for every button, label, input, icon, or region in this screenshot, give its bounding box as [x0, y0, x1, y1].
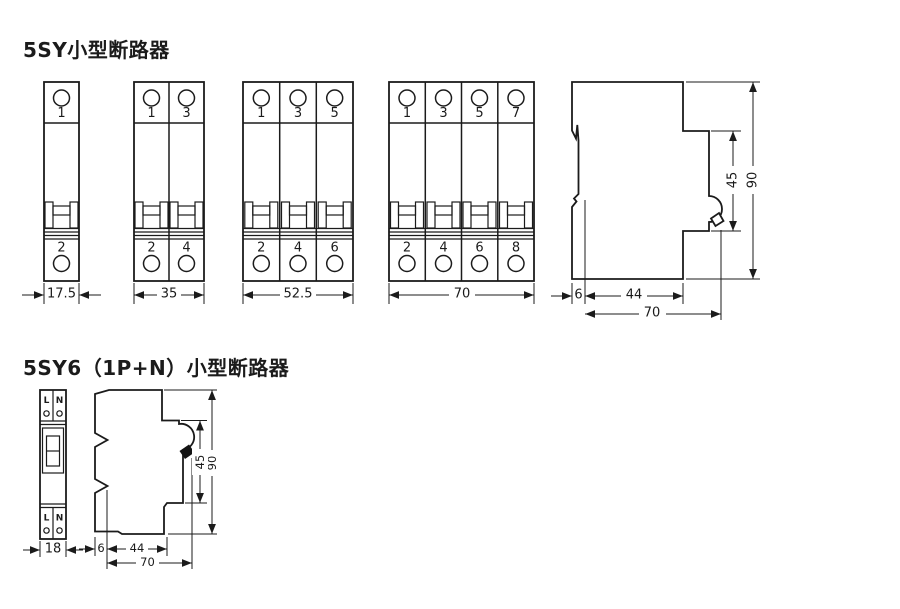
pole-number: 6: [475, 241, 483, 256]
dim-label: 6: [574, 288, 582, 303]
pole-number: 7: [512, 106, 520, 121]
rail-dimension: 6: [79, 541, 105, 555]
height-dimension: 90: [744, 82, 762, 279]
handle-height-dimension: 45: [724, 131, 742, 231]
dim-label: 45: [193, 455, 207, 470]
terminal-label: N: [56, 396, 64, 406]
technical-drawing: 1 2 17.5 1 3: [0, 0, 900, 609]
width-dimension: 35: [134, 283, 204, 304]
pole-number: 1: [147, 106, 155, 121]
pole-number: 8: [512, 241, 520, 256]
dim-label: 52.5: [284, 287, 313, 302]
dim-label: 44: [626, 288, 643, 303]
pole-number: 3: [182, 106, 190, 121]
side-profile: [95, 390, 194, 534]
breaker-side-view: 90 45 6: [551, 82, 762, 322]
width-dimension: 52.5: [243, 283, 353, 304]
pole-number: 6: [331, 241, 339, 256]
terminal-label: N: [56, 514, 64, 524]
dim-label: 6: [97, 541, 104, 555]
dim-label: 90: [746, 172, 761, 189]
dim-label: 70: [454, 287, 471, 302]
dim-label: 17.5: [47, 287, 76, 302]
pole-number: 5: [475, 106, 483, 121]
width-dimension: 17.5: [22, 283, 101, 304]
total-depth-dimension: 70: [107, 555, 192, 570]
dim-label: 45: [726, 172, 741, 189]
page: 5SY小型断路器 5SY6（1P+N）小型断路器 1 2: [0, 0, 900, 609]
body-depth-dimension: 44: [585, 288, 683, 305]
pole-number: 4: [439, 241, 447, 256]
pole-number: 1: [257, 106, 265, 121]
side-profile: [572, 82, 722, 279]
body-depth-dimension: 44: [107, 541, 167, 556]
pole-number: 5: [331, 106, 339, 121]
terminal-label: L: [44, 396, 50, 406]
pole-number: 4: [182, 241, 190, 256]
pn-breaker-side-view: 90 45 6: [79, 390, 220, 570]
rail-dimension: 6: [551, 288, 583, 303]
pole-number: 4: [294, 241, 302, 256]
pole-number: 2: [147, 241, 155, 256]
pole-number: 2: [403, 241, 411, 256]
pole-number: 2: [57, 241, 65, 256]
total-depth-dimension: 70: [585, 306, 721, 323]
dim-label: 70: [140, 555, 155, 569]
breaker-4pole-front: 1 3 5 7 2 4 6 8: [389, 82, 534, 304]
breaker-3pole-front: 1 3 5 2 4 6: [243, 82, 353, 304]
pn-breaker-front: L N L N 18: [23, 390, 83, 557]
dim-label: 18: [45, 542, 62, 557]
dim-label: 44: [130, 541, 145, 555]
pole-number: 3: [439, 106, 447, 121]
breaker-2pole-front: 1 3 2 4 35: [134, 82, 204, 304]
dim-label: 70: [644, 306, 661, 321]
width-dimension: 70: [389, 283, 534, 304]
breaker-1pole-front: 1 2 17.5: [22, 82, 101, 304]
width-dimension: 18: [23, 541, 83, 557]
pole-number: 2: [257, 241, 265, 256]
pole-number: 1: [57, 106, 65, 121]
pole-number: 3: [294, 106, 302, 121]
pole-number: 1: [403, 106, 411, 121]
dim-label: 35: [161, 287, 178, 302]
terminal-label: L: [44, 514, 50, 524]
